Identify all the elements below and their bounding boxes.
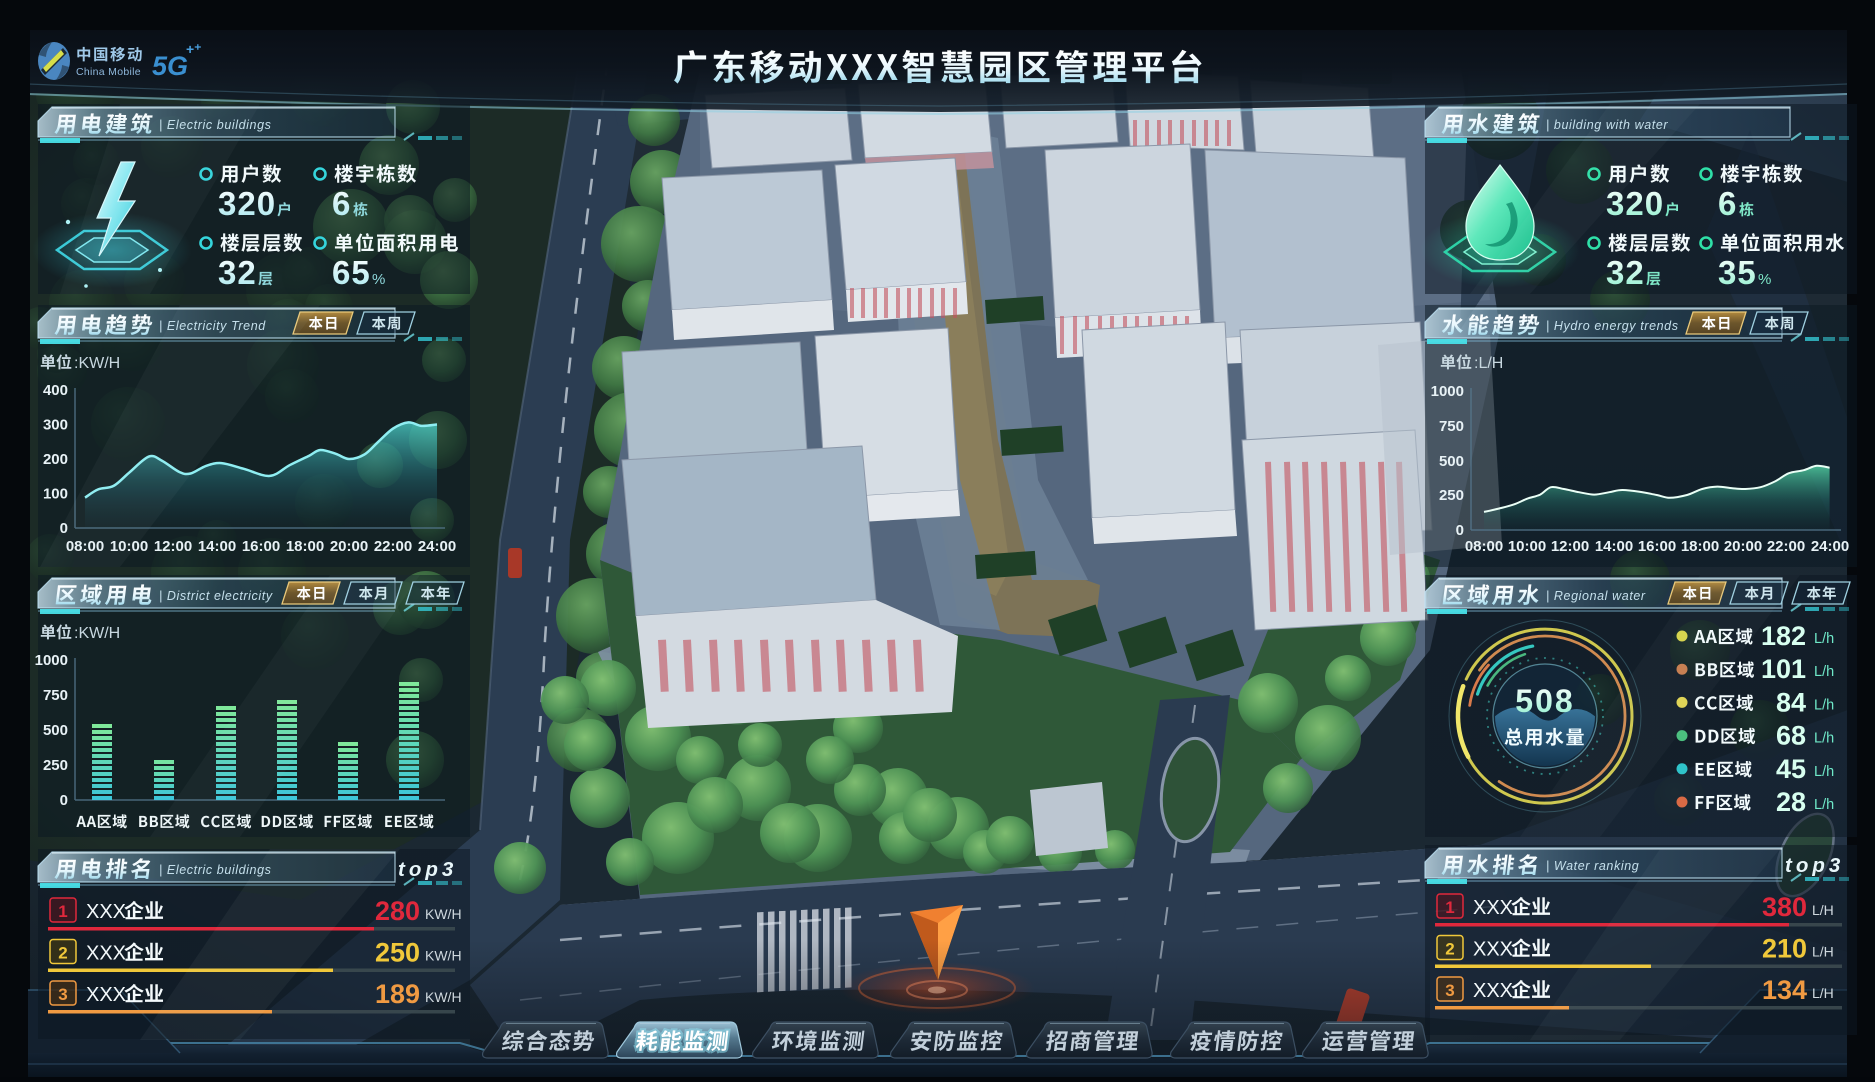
svg-text:101: 101 <box>1761 654 1806 684</box>
svg-text:18:00: 18:00 <box>286 538 324 555</box>
svg-text:22:00: 22:00 <box>374 538 412 555</box>
svg-text::KW/H: :KW/H <box>74 355 120 372</box>
svg-text:32: 32 <box>218 254 257 291</box>
svg-text:65: 65 <box>332 254 371 291</box>
svg-text:| District electricity: | District electricity <box>159 589 273 603</box>
svg-text:2: 2 <box>1445 940 1454 959</box>
svg-text:508: 508 <box>1515 683 1574 719</box>
svg-text:22:00: 22:00 <box>1767 538 1805 555</box>
svg-text:24:00: 24:00 <box>418 538 456 555</box>
svg-text:300: 300 <box>43 417 68 434</box>
svg-text:18:00: 18:00 <box>1681 538 1719 555</box>
svg-text:10:00: 10:00 <box>1508 538 1546 555</box>
svg-text:L/h: L/h <box>1814 664 1834 680</box>
svg-text:1000: 1000 <box>35 652 68 669</box>
svg-text:14:00: 14:00 <box>198 538 236 555</box>
svg-text:2: 2 <box>58 944 67 963</box>
svg-text:L/h: L/h <box>1814 797 1834 813</box>
svg-text:210: 210 <box>1762 934 1807 964</box>
svg-text::KW/H: :KW/H <box>74 625 120 642</box>
svg-text:+⁺: +⁺ <box>186 41 202 57</box>
svg-text:XXX: XXX <box>86 984 126 1006</box>
svg-text:KW/H: KW/H <box>425 906 462 922</box>
svg-text:35: 35 <box>1718 254 1757 291</box>
svg-text:KW/H: KW/H <box>425 948 462 964</box>
svg-text:5G: 5G <box>152 51 188 81</box>
svg-text:3: 3 <box>58 985 67 1004</box>
svg-text:84: 84 <box>1776 687 1806 717</box>
svg-text:L/H: L/H <box>1812 902 1834 918</box>
svg-text:top3: top3 <box>398 858 457 881</box>
svg-text:20:00: 20:00 <box>330 538 368 555</box>
svg-text:200: 200 <box>43 451 68 468</box>
svg-text:XXX: XXX <box>86 943 126 965</box>
svg-text:L/H: L/H <box>1812 944 1834 960</box>
svg-text:6: 6 <box>1718 185 1737 222</box>
svg-text:3: 3 <box>1445 981 1454 1000</box>
svg-text:45: 45 <box>1776 754 1806 784</box>
svg-text:380: 380 <box>1762 892 1807 922</box>
svg-text:L/h: L/h <box>1814 764 1834 780</box>
svg-text:400: 400 <box>43 382 68 399</box>
svg-text:250: 250 <box>375 938 420 968</box>
svg-text:24:00: 24:00 <box>1811 538 1849 555</box>
svg-text:250: 250 <box>43 757 68 774</box>
svg-text:%: % <box>1758 271 1771 288</box>
svg-text:KW/H: KW/H <box>425 989 462 1005</box>
svg-text:500: 500 <box>1439 453 1464 470</box>
svg-text:100: 100 <box>43 486 68 503</box>
svg-text:134: 134 <box>1762 975 1807 1005</box>
svg-text:28: 28 <box>1776 787 1806 817</box>
svg-text:China Mobile: China Mobile <box>76 66 141 78</box>
svg-text:| Water ranking: | Water ranking <box>1546 859 1639 873</box>
svg-text:L/H: L/H <box>1812 985 1834 1001</box>
svg-text:| Regional water: | Regional water <box>1546 589 1646 603</box>
svg-text:L/h: L/h <box>1814 697 1834 713</box>
svg-text:1: 1 <box>1445 898 1454 917</box>
svg-text:top3: top3 <box>1785 854 1844 877</box>
svg-text:182: 182 <box>1761 621 1806 651</box>
svg-text:280: 280 <box>375 896 420 926</box>
svg-text:16:00: 16:00 <box>242 538 280 555</box>
svg-text:16:00: 16:00 <box>1638 538 1676 555</box>
svg-text:189: 189 <box>375 979 420 1009</box>
svg-text:08:00: 08:00 <box>1465 538 1503 555</box>
svg-text:250: 250 <box>1439 487 1464 504</box>
svg-text:14:00: 14:00 <box>1595 538 1633 555</box>
svg-text:L/h: L/h <box>1814 731 1834 747</box>
svg-text::L/H: :L/H <box>1474 355 1503 372</box>
svg-text:68: 68 <box>1776 721 1806 751</box>
svg-text:XXX: XXX <box>86 901 126 923</box>
svg-text:12:00: 12:00 <box>154 538 192 555</box>
svg-text:500: 500 <box>43 722 68 739</box>
svg-text:32: 32 <box>1606 254 1645 291</box>
svg-text:0: 0 <box>60 792 68 809</box>
svg-text:%: % <box>372 271 385 288</box>
svg-text:20:00: 20:00 <box>1724 538 1762 555</box>
svg-text:1000: 1000 <box>1431 383 1464 400</box>
svg-text:6: 6 <box>332 185 351 222</box>
svg-text:750: 750 <box>43 687 68 704</box>
svg-text:1: 1 <box>58 902 67 921</box>
svg-text:XXX: XXX <box>1473 980 1513 1002</box>
svg-text:XXX: XXX <box>1473 939 1513 961</box>
svg-text:750: 750 <box>1439 418 1464 435</box>
svg-text:L/h: L/h <box>1814 631 1834 647</box>
svg-text:320: 320 <box>218 185 276 222</box>
svg-text:XXX: XXX <box>1473 897 1513 919</box>
svg-text:0: 0 <box>1456 522 1464 539</box>
svg-text:| Hydro energy trends: | Hydro energy trends <box>1546 319 1679 333</box>
svg-text:12:00: 12:00 <box>1551 538 1589 555</box>
